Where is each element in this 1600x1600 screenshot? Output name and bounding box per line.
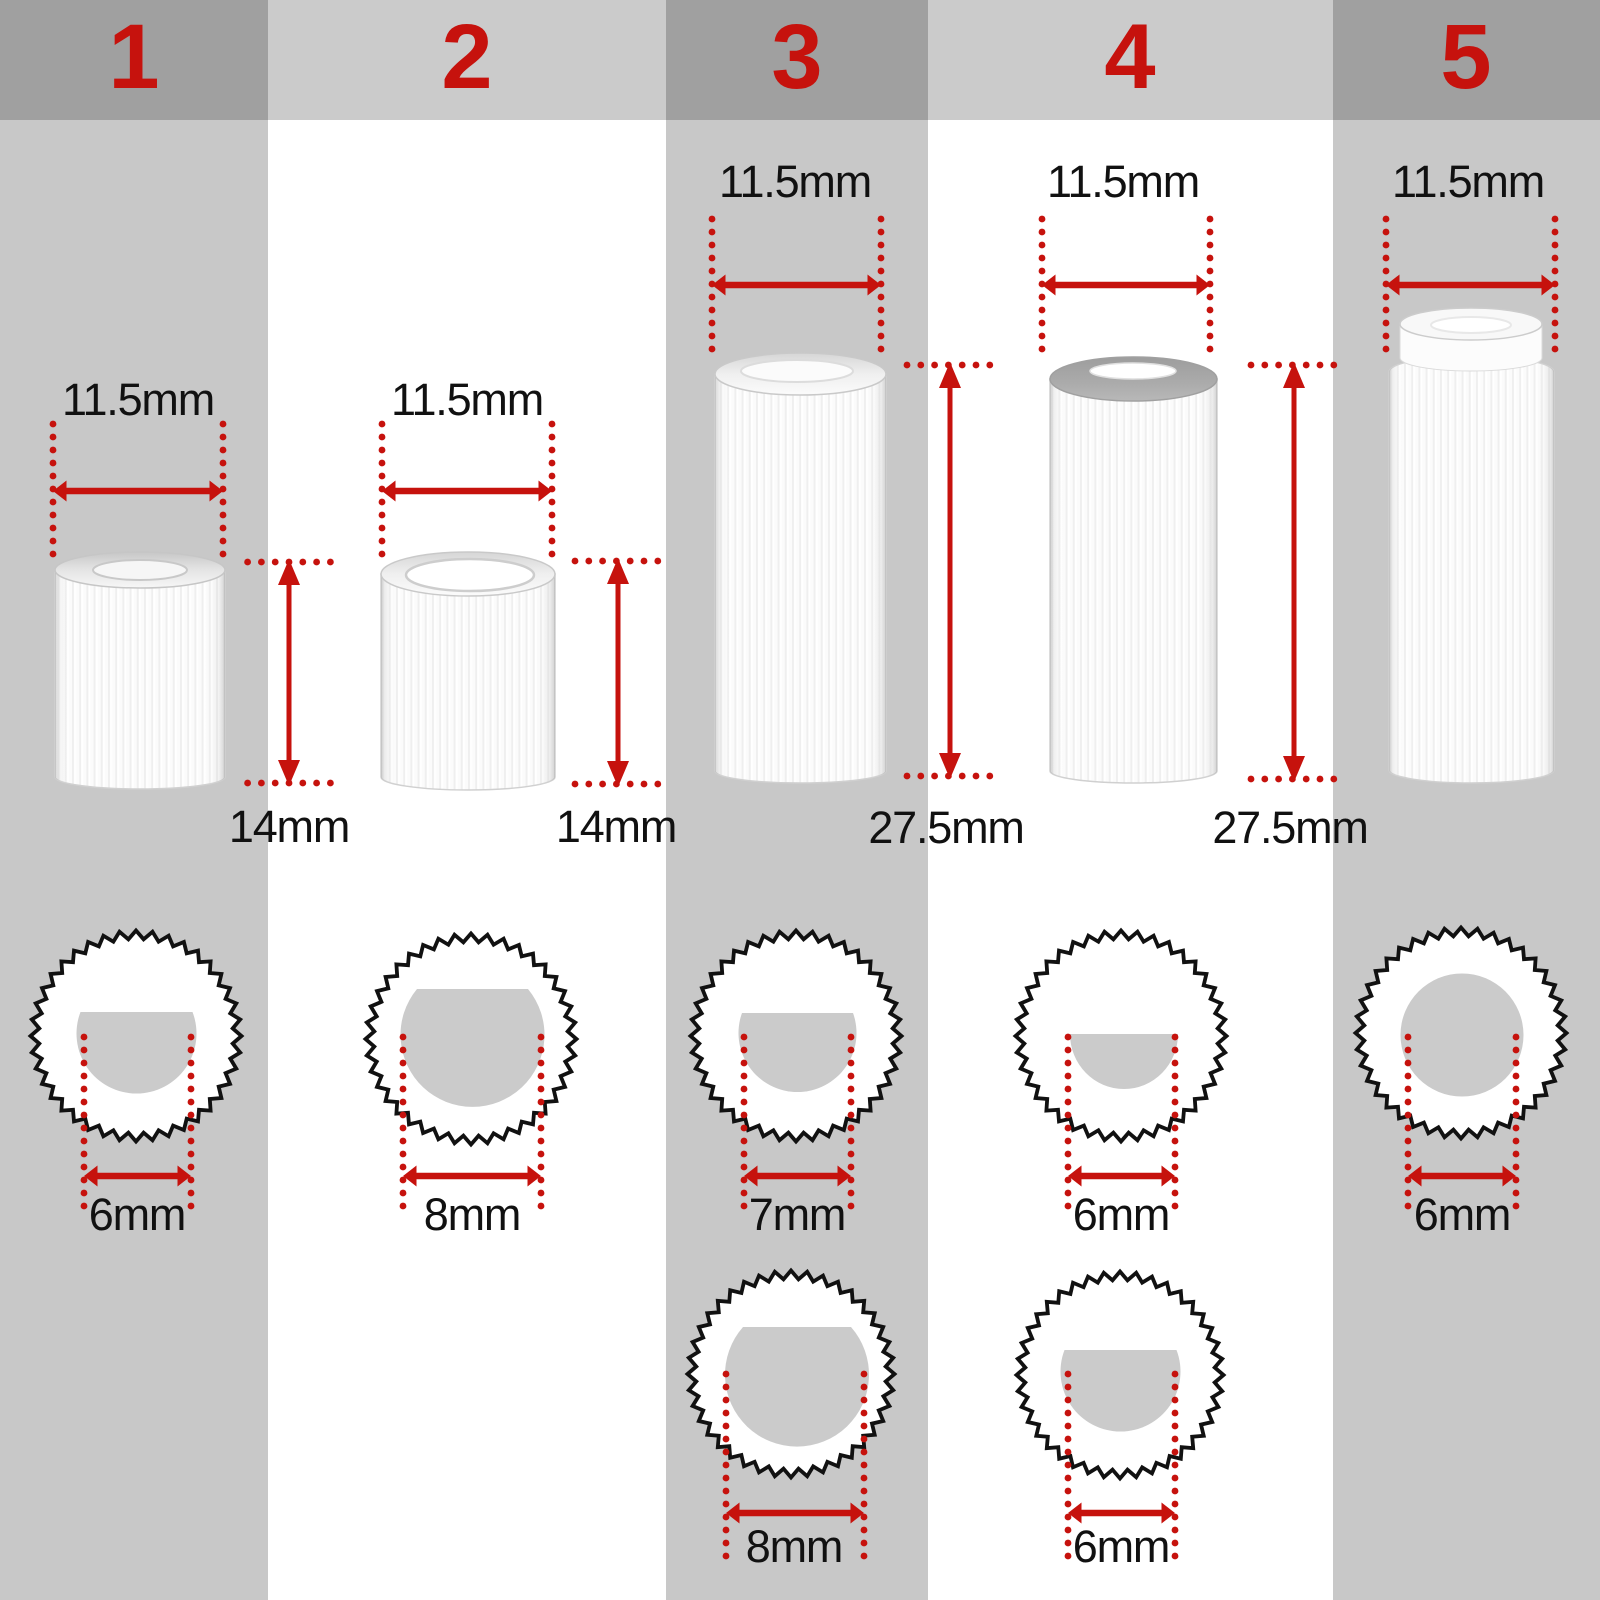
svg-text:14mm: 14mm xyxy=(556,801,676,852)
svg-text:6mm: 6mm xyxy=(1414,1189,1510,1240)
svg-text:2: 2 xyxy=(441,6,492,108)
svg-text:11.5mm: 11.5mm xyxy=(1047,156,1199,207)
svg-text:6mm: 6mm xyxy=(1073,1521,1169,1572)
svg-text:27.5mm: 27.5mm xyxy=(1212,802,1367,853)
svg-text:8mm: 8mm xyxy=(424,1189,520,1240)
svg-text:1: 1 xyxy=(108,6,159,108)
svg-text:11.5mm: 11.5mm xyxy=(391,374,543,425)
svg-text:3: 3 xyxy=(771,6,822,108)
svg-text:4: 4 xyxy=(1104,6,1155,108)
svg-text:11.5mm: 11.5mm xyxy=(1392,156,1544,207)
svg-text:5: 5 xyxy=(1440,6,1491,108)
svg-text:6mm: 6mm xyxy=(89,1189,185,1240)
svg-text:27.5mm: 27.5mm xyxy=(868,802,1023,853)
svg-text:6mm: 6mm xyxy=(1073,1189,1169,1240)
svg-text:7mm: 7mm xyxy=(749,1189,845,1240)
svg-text:11.5mm: 11.5mm xyxy=(719,156,871,207)
svg-text:8mm: 8mm xyxy=(746,1521,842,1572)
svg-text:14mm: 14mm xyxy=(229,801,349,852)
svg-text:11.5mm: 11.5mm xyxy=(62,374,214,425)
